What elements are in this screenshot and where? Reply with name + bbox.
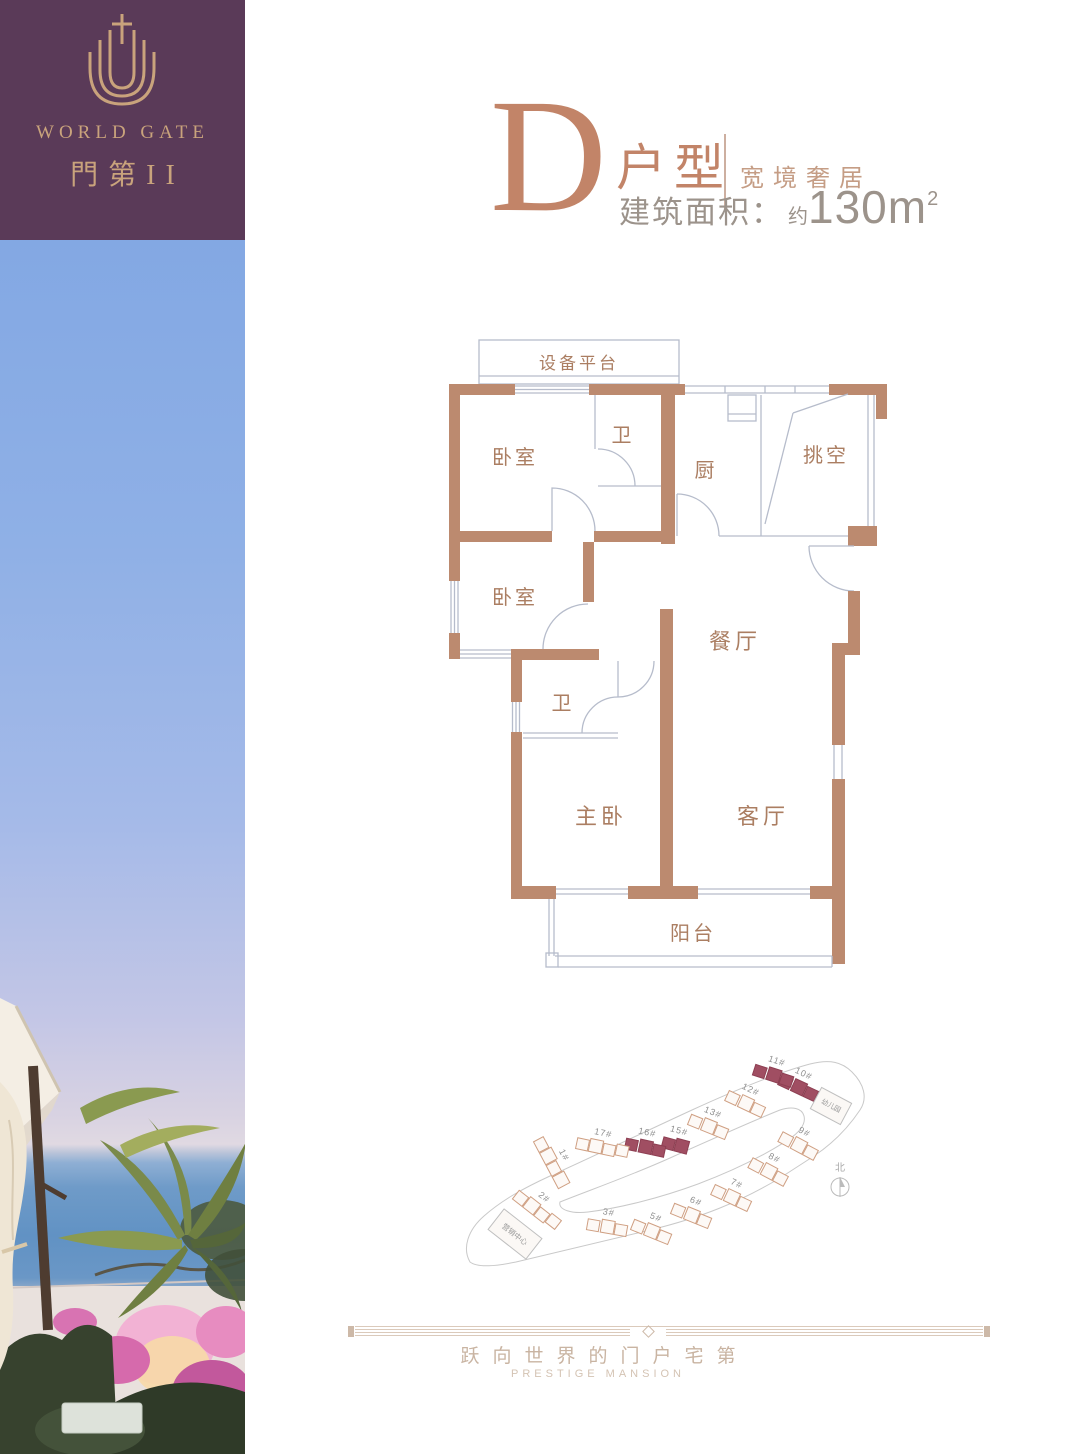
site-building-7: 7#: [711, 1171, 758, 1211]
room-label-kitchen: 厨: [695, 460, 718, 482]
brand-name-cn: 門第II: [0, 153, 245, 193]
svg-text:11#: 11#: [767, 1053, 787, 1068]
site-building-1: 1#: [534, 1130, 582, 1189]
room-label-master-bedroom: 主卧: [575, 804, 627, 829]
area-label: 建筑面积：: [619, 187, 784, 232]
room-label-living: 客厅: [737, 804, 789, 829]
room-label-bedroom-2: 卧室: [492, 586, 538, 609]
resort-photo-art: [0, 240, 245, 1454]
svg-text:15#: 15#: [669, 1123, 689, 1137]
decorative-rule: [348, 1326, 990, 1337]
room-label-void: 挑空: [803, 444, 849, 467]
unit-letter: D: [490, 76, 607, 238]
site-plan: 1# 2# 营销中心 3# 5# 6# 7# 8# 9# 10# 11#: [440, 1052, 900, 1277]
site-building-3: 3#: [586, 1204, 630, 1237]
site-building-12: 12#: [725, 1077, 772, 1117]
site-building-13: 13#: [688, 1100, 735, 1139]
svg-text:5#: 5#: [649, 1210, 664, 1224]
floor-plan: 设备平台: [443, 336, 893, 991]
brand-name-en: WORLD GATE: [0, 122, 245, 144]
slogan-en: PRESTIGE MANSION: [348, 1368, 848, 1380]
left-sidebar: WORLD GATE 門第II: [0, 0, 245, 1454]
area-value: 130m: [808, 180, 927, 234]
svg-text:1#: 1#: [557, 1147, 571, 1162]
site-inner-outline: [560, 1108, 805, 1213]
svg-text:3#: 3#: [602, 1206, 616, 1218]
site-building-16: 16#: [624, 1124, 669, 1158]
slogan-cn: 跃向世界的门户宅第: [348, 1341, 848, 1368]
north-label: 北: [835, 1162, 845, 1174]
room-label-bath-1: 卫: [612, 425, 635, 447]
svg-text:6#: 6#: [689, 1194, 704, 1208]
svg-text:7#: 7#: [729, 1176, 744, 1190]
white-box-shape: [62, 1403, 142, 1433]
world-gate-emblem-icon: [0, 0, 245, 120]
site-plan-drawing: 1# 2# 营销中心 3# 5# 6# 7# 8# 9# 10# 11#: [440, 1052, 900, 1277]
room-label-bath-2: 卫: [552, 693, 575, 715]
north-indicator: 北: [831, 1162, 849, 1197]
area-superscript: 2: [927, 188, 938, 211]
room-label-bedroom-1: 卧室: [492, 446, 538, 469]
site-building-8: 8#: [748, 1145, 796, 1187]
svg-text:9#: 9#: [797, 1125, 812, 1139]
room-label-dining: 餐厅: [709, 629, 761, 654]
brand-logo-block: WORLD GATE 門第II: [0, 0, 245, 240]
site-building-17: 17#: [576, 1123, 632, 1159]
area-approx: 约: [788, 200, 808, 229]
area-line: 建筑面积： 约 130m 2: [619, 180, 938, 234]
room-label-balcony: 阳台: [670, 922, 716, 945]
svg-text:17#: 17#: [594, 1126, 614, 1140]
site-building-9: 9#: [778, 1119, 826, 1161]
floor-plan-drawing: 设备平台: [443, 336, 893, 991]
site-marketing-center: 营销中心: [488, 1209, 542, 1259]
room-label-equipment-platform: 设备平台: [539, 354, 619, 373]
resort-photo: [0, 240, 245, 1454]
rule-ornament: [630, 1327, 666, 1336]
svg-text:8#: 8#: [767, 1151, 782, 1165]
